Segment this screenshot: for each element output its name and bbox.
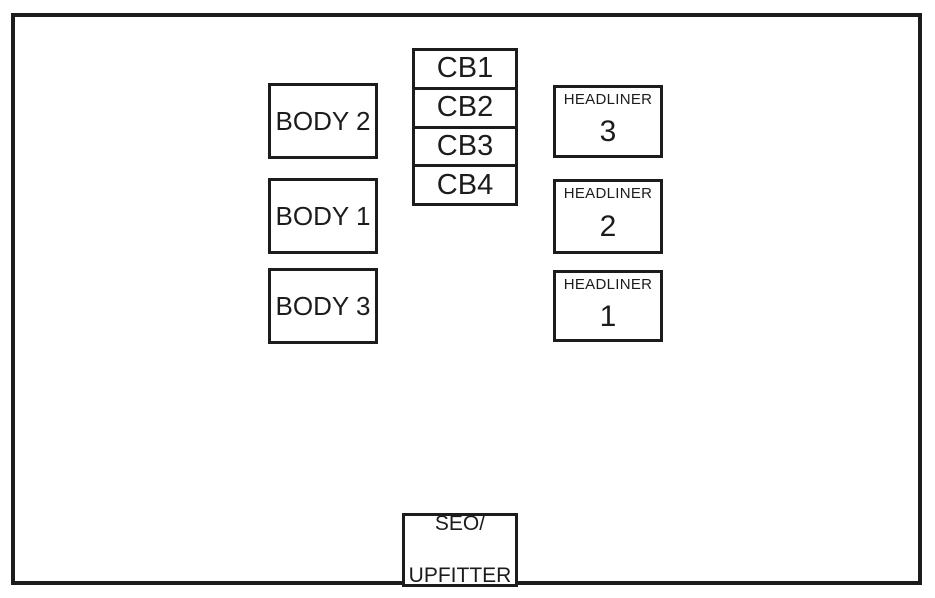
- circuit-breaker-cb3: CB3: [415, 129, 515, 168]
- circuit-breaker-stack: CB1 CB2 CB3 CB4: [412, 48, 518, 206]
- seo-upfitter-line2: UPFITTER: [409, 563, 512, 589]
- fuse-box-headliner-2-number: 2: [600, 203, 617, 251]
- fuse-box-body-1-label: BODY 1: [276, 201, 371, 232]
- fuse-box-body-2: BODY 2: [268, 83, 378, 159]
- circuit-breaker-cb3-label: CB3: [437, 130, 493, 163]
- circuit-breaker-cb4: CB4: [415, 167, 515, 203]
- fuse-box-headliner-1-number: 1: [600, 294, 617, 339]
- diagram-outer-border: BODY 2 BODY 1 BODY 3 CB1 CB2 CB3 CB4 HEA…: [11, 13, 922, 585]
- fuse-box-headliner-3-title: HEADLINER: [564, 91, 653, 109]
- circuit-breaker-cb2-label: CB2: [437, 91, 493, 124]
- fuse-relay-diagram: BODY 2 BODY 1 BODY 3 CB1 CB2 CB3 CB4 HEA…: [0, 0, 935, 598]
- seo-upfitter-line1: SEO/: [409, 511, 512, 537]
- fuse-box-body-1: BODY 1: [268, 178, 378, 254]
- fuse-box-seo-upfitter: SEO/ UPFITTER: [402, 513, 518, 587]
- fuse-box-headliner-2-title: HEADLINER: [564, 185, 653, 203]
- fuse-box-headliner-3-number: 3: [600, 109, 617, 155]
- fuse-box-body-3: BODY 3: [268, 268, 378, 344]
- fuse-box-headliner-1-title: HEADLINER: [564, 276, 653, 294]
- fuse-box-seo-upfitter-label: SEO/ UPFITTER: [409, 485, 512, 598]
- circuit-breaker-cb1-label: CB1: [437, 52, 493, 85]
- fuse-box-headliner-1: HEADLINER 1: [553, 270, 663, 342]
- circuit-breaker-cb4-label: CB4: [437, 169, 493, 202]
- fuse-box-headliner-2: HEADLINER 2: [553, 179, 663, 254]
- fuse-box-body-2-label: BODY 2: [276, 106, 371, 137]
- fuse-box-body-3-label: BODY 3: [276, 291, 371, 322]
- fuse-box-headliner-3: HEADLINER 3: [553, 85, 663, 158]
- circuit-breaker-cb1: CB1: [415, 51, 515, 90]
- circuit-breaker-cb2: CB2: [415, 90, 515, 129]
